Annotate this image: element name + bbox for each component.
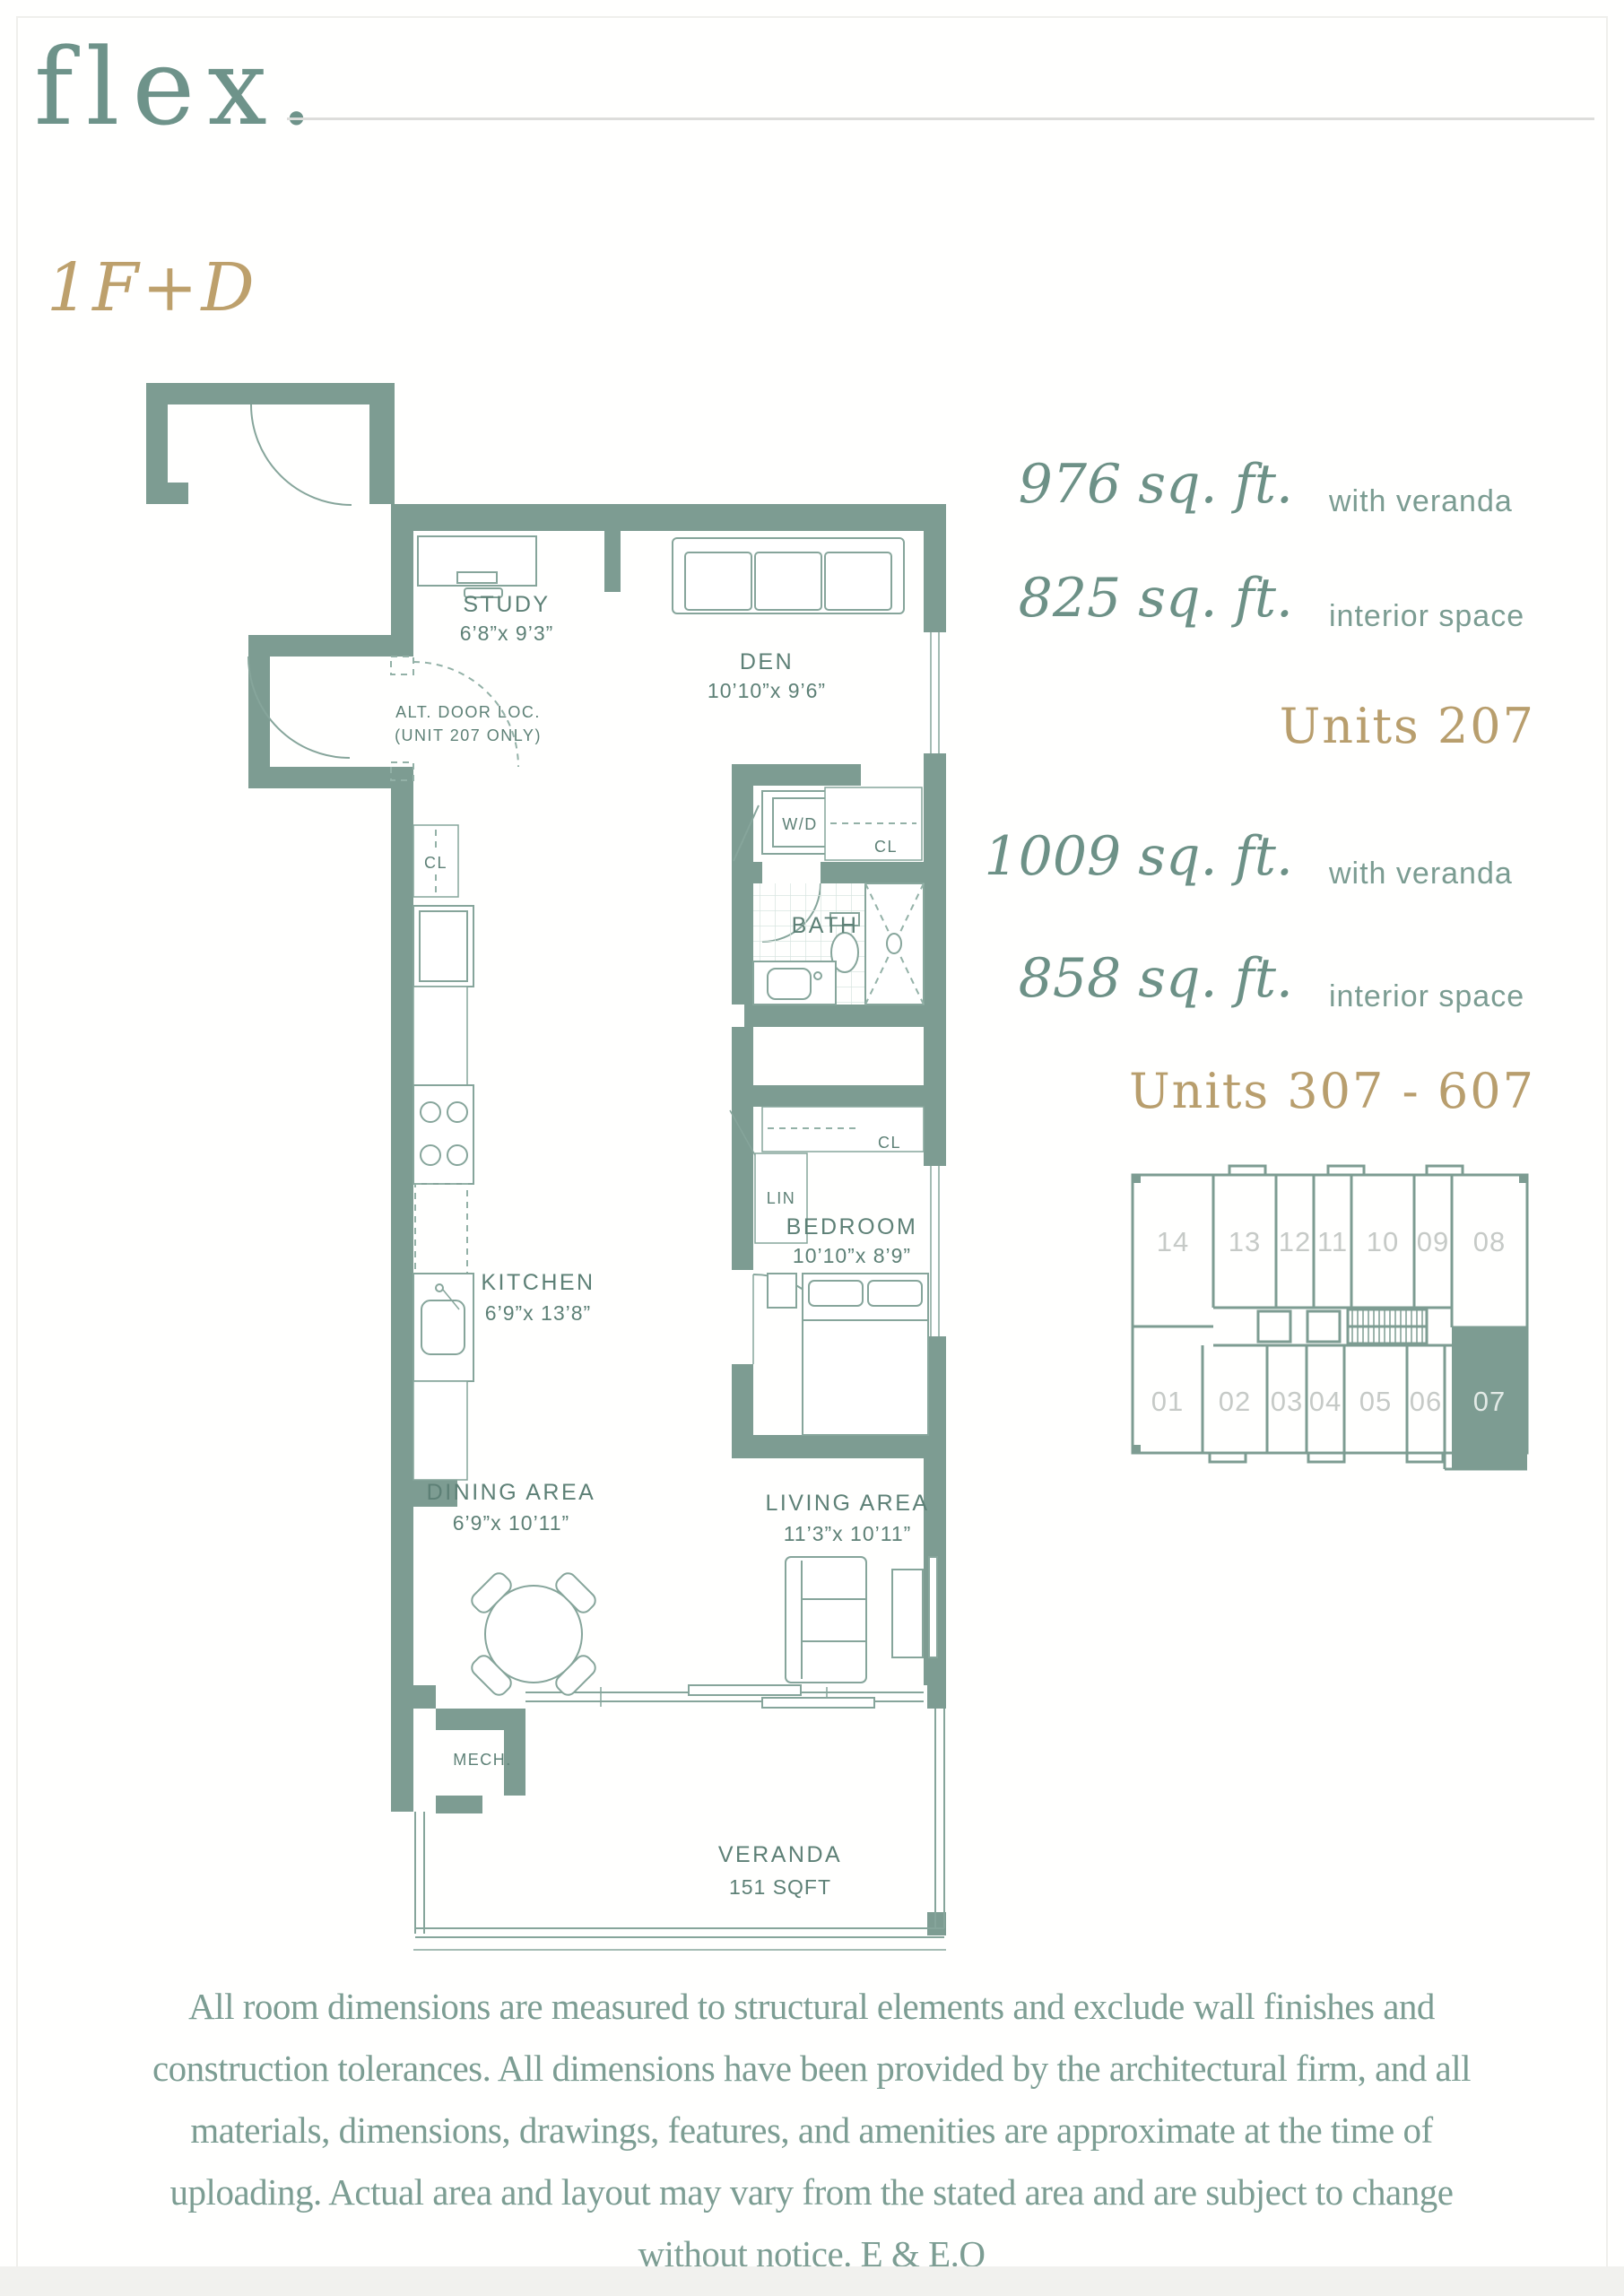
keyplan-unit-08: 08 (1473, 1226, 1506, 1257)
keyplan-unit-02: 02 (1219, 1386, 1251, 1417)
label-study: STUDY (463, 592, 550, 617)
brand-logo: flex. (34, 25, 326, 149)
label-study-dim: 6’8”x 9’3” (460, 622, 554, 645)
keyplan-unit-09: 09 (1417, 1226, 1449, 1257)
label-den: DEN (740, 649, 794, 674)
label-cl-den: CL (874, 838, 898, 856)
area-with-veranda-307: 1009 sq. ft. (984, 825, 1293, 888)
page-bottom-edge (0, 2266, 1624, 2296)
label-den-dim: 10’10”x 9’6” (708, 679, 826, 702)
label-alt-door-2: (UNIT 207 ONLY) (395, 726, 542, 744)
area-with-veranda-207-label: with veranda (1329, 484, 1513, 519)
label-living-dim: 11’3”x 10’11” (784, 1522, 912, 1545)
header-rule (287, 117, 1594, 120)
keyplan-unit-07: 07 (1473, 1386, 1506, 1417)
keyplan-unit-06: 06 (1410, 1386, 1442, 1417)
dining-table (469, 1570, 599, 1699)
label-alt-door-1: ALT. DOOR LOC. (395, 703, 541, 721)
label-cl-bedroom: CL (878, 1134, 901, 1152)
area-interior-307: 858 sq. ft. (1019, 947, 1293, 1010)
living-furniture (786, 1557, 937, 1683)
label-kitchen: KITCHEN (481, 1270, 595, 1295)
label-bedroom: BEDROOM (786, 1214, 918, 1239)
keyplan-unit-01: 01 (1151, 1386, 1184, 1417)
keyplan-unit-14: 14 (1157, 1226, 1189, 1257)
bath-fixtures (753, 883, 924, 1004)
keyplan-unit-05: 05 (1359, 1386, 1392, 1417)
floorplan-drawing: STUDY 6’8”x 9’3” DEN 10’10”x 9’6” ALT. D… (135, 377, 1004, 1982)
units-207: Units 207 (1280, 698, 1535, 754)
keyplan-unit-10: 10 (1367, 1226, 1399, 1257)
label-dining-dim: 6’9”x 10’11” (453, 1511, 569, 1535)
units-307-607: Units 307 - 607 (1129, 1063, 1535, 1119)
keyplan-unit-12: 12 (1279, 1226, 1311, 1257)
bed (768, 1274, 928, 1435)
label-veranda: VERANDA (718, 1842, 842, 1867)
label-cl-kitchen: CL (424, 854, 447, 872)
study-desk (418, 536, 536, 597)
label-veranda-area: 151 SQFT (729, 1875, 831, 1899)
label-lin: LIN (767, 1189, 796, 1207)
den-sofa (673, 538, 904, 613)
keyplan-unit-04: 04 (1309, 1386, 1342, 1417)
label-dining: DINING AREA (427, 1480, 596, 1505)
area-interior-207-label: interior space (1329, 599, 1524, 634)
area-with-veranda-207: 976 sq. ft. (1019, 453, 1293, 516)
label-living: LIVING AREA (765, 1491, 929, 1516)
label-wd: W/D (782, 815, 818, 833)
plan-code: 1F+D (47, 249, 258, 326)
label-bedroom-dim: 10’10”x 8’9” (793, 1244, 911, 1267)
area-interior-207: 825 sq. ft. (1019, 567, 1293, 630)
keyplan-outline (1133, 1166, 1527, 1469)
disclaimer-text: All room dimensions are measured to stru… (126, 1976, 1498, 2284)
area-with-veranda-307-label: with veranda (1329, 857, 1513, 891)
keyplan-unit-11: 11 (1317, 1226, 1348, 1257)
keyplan-unit-13: 13 (1229, 1226, 1261, 1257)
label-mech: MECH. (453, 1751, 512, 1769)
veranda-railing (413, 1709, 946, 1950)
label-kitchen-dim: 6’9”x 13’8” (485, 1301, 591, 1325)
keyplan: 14 13 12 11 10 09 08 01 02 03 04 05 06 0… (1124, 1157, 1535, 1491)
kitchen-fixtures (413, 825, 473, 1480)
label-bath: BATH (792, 913, 859, 938)
keyplan-unit-03: 03 (1271, 1386, 1303, 1417)
floorplan-sheet: flex. 1F+D 976 sq. ft. with veranda 825 … (0, 0, 1624, 2296)
area-interior-307-label: interior space (1329, 979, 1524, 1014)
